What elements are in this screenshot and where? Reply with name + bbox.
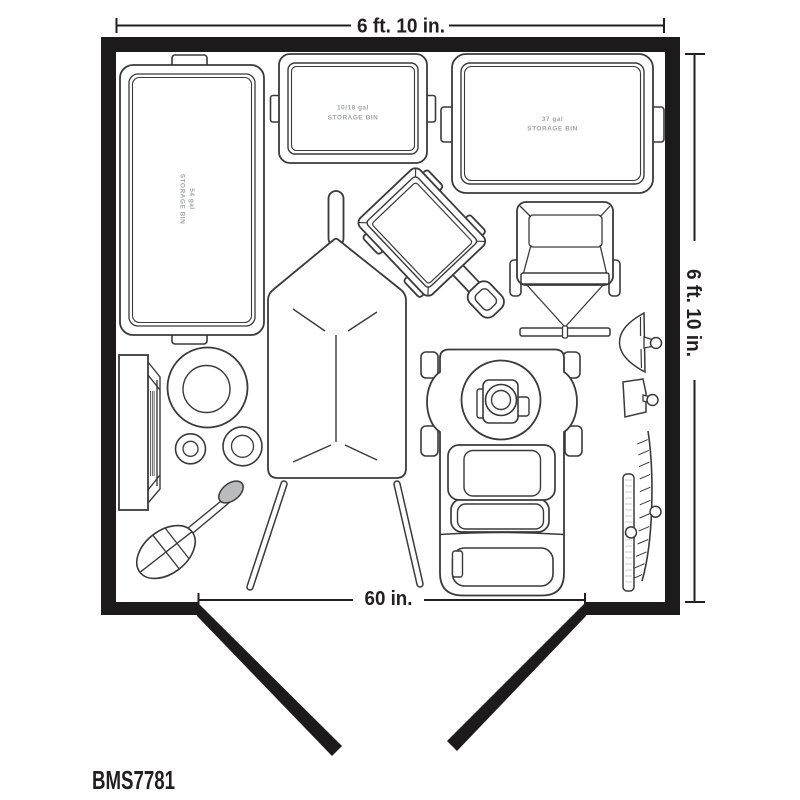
svg-text:STORAGE BIN: STORAGE BIN xyxy=(328,115,379,122)
svg-text:60 in.: 60 in. xyxy=(365,588,413,610)
svg-text:54 gal: 54 gal xyxy=(188,188,195,209)
svg-text:6 ft. 10 in.: 6 ft. 10 in. xyxy=(357,16,445,38)
svg-text:BMS7781: BMS7781 xyxy=(92,765,175,795)
svg-text:STORAGE BIN: STORAGE BIN xyxy=(527,126,578,133)
svg-text:10/18 gal: 10/18 gal xyxy=(337,105,369,112)
svg-text:6 ft. 10 in.: 6 ft. 10 in. xyxy=(682,269,704,357)
svg-text:37 gal: 37 gal xyxy=(542,116,563,123)
svg-text:STORAGE BIN: STORAGE BIN xyxy=(178,174,185,225)
